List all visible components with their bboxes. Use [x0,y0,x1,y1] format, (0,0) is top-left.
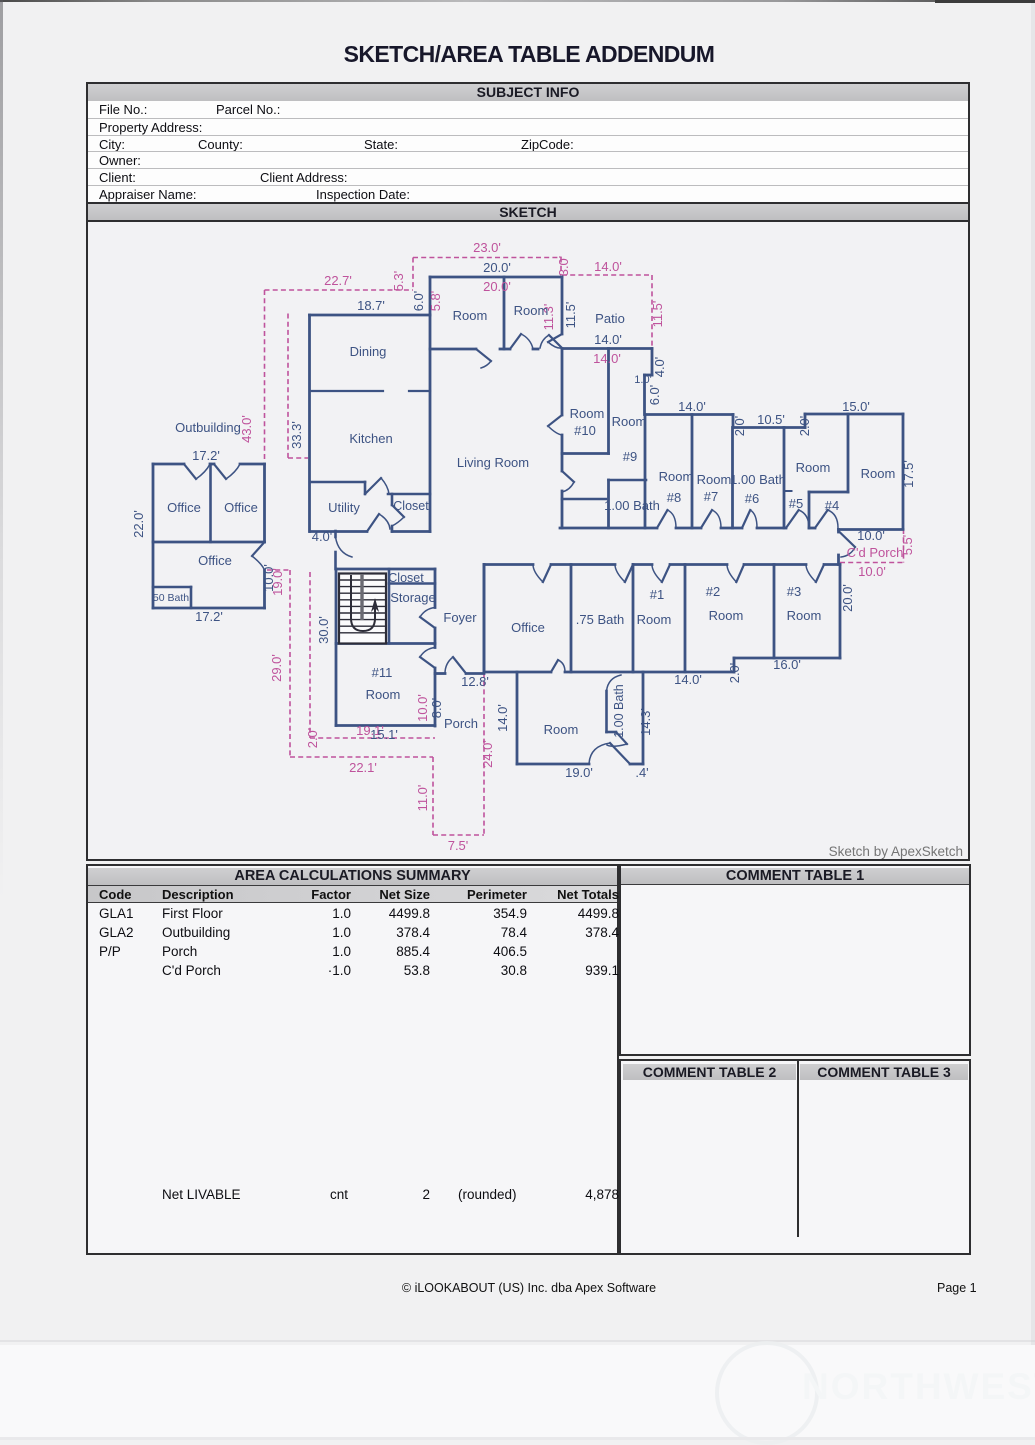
svg-text:10.0': 10.0' [415,694,430,722]
svg-text:2.0': 2.0' [305,728,320,749]
svg-text:Room: Room [637,612,672,627]
svg-text:29.0': 29.0' [269,654,284,682]
svg-text:6.0': 6.0' [647,385,662,406]
svg-text:Foyer: Foyer [443,610,477,625]
svg-text:3.0': 3.0' [556,256,571,277]
svg-text:20.0': 20.0' [840,584,855,612]
svg-text:22.1': 22.1' [349,760,377,775]
svg-text:Room: Room [697,472,732,487]
svg-text:Room: Room [366,687,401,702]
svg-text:4.0': 4.0' [312,529,333,544]
svg-text:43.0': 43.0' [239,415,254,443]
svg-text:10.0': 10.0' [858,564,886,579]
svg-text:Office: Office [167,500,201,515]
svg-text:#11: #11 [372,665,393,680]
svg-text:14.0': 14.0' [593,351,621,366]
svg-text:14.0': 14.0' [674,672,702,687]
svg-text:5.3': 5.3' [391,271,406,292]
svg-text:6.0': 6.0' [411,291,426,312]
svg-text:7.5': 7.5' [448,838,469,853]
svg-text:16.0': 16.0' [773,657,801,672]
svg-text:Sketch by ApexSketch: Sketch by ApexSketch [829,844,963,859]
svg-text:.75 Bath: .75 Bath [576,612,624,627]
svg-text:5.8': 5.8' [428,291,443,312]
svg-text:1.0': 1.0' [634,374,651,386]
svg-text:#4: #4 [825,498,839,513]
svg-text:18.7': 18.7' [357,298,385,313]
svg-text:Kitchen: Kitchen [349,431,392,446]
svg-text:14.0': 14.0' [678,399,706,414]
svg-text:#3: #3 [787,584,801,599]
svg-text:#8: #8 [667,490,681,505]
svg-text:#2: #2 [706,584,720,599]
svg-text:#10: #10 [574,423,596,438]
svg-text:14.0': 14.0' [594,259,622,274]
svg-text:Room: Room [453,308,488,323]
svg-text:#1: #1 [650,587,664,602]
svg-text:1.00 Bath: 1.00 Bath [612,684,626,738]
svg-text:20.0': 20.0' [483,279,511,294]
svg-text:19.0': 19.0' [565,765,593,780]
svg-text:Room: Room [514,303,549,318]
svg-text:Porch: Porch [444,716,478,731]
svg-text:Room: Room [796,460,831,475]
svg-text:#7: #7 [704,489,718,504]
svg-text:Storage: Storage [390,590,436,605]
svg-text:24.0': 24.0' [480,740,495,768]
svg-text:17.2': 17.2' [192,448,220,463]
svg-text:14.3': 14.3' [638,708,653,736]
svg-text:20.0': 20.0' [483,260,511,275]
svg-text:17.2': 17.2' [195,609,223,624]
svg-text:12.8': 12.8' [461,674,489,689]
svg-text:4.0': 4.0' [652,357,667,378]
svg-text:Closet: Closet [388,571,424,585]
svg-text:17.5': 17.5' [901,460,916,488]
svg-text:22.0': 22.0' [131,510,146,538]
svg-text:22.7': 22.7' [324,273,352,288]
svg-text:11.5': 11.5' [650,301,665,328]
svg-text:Outbuilding: Outbuilding [175,420,241,435]
svg-text:15.1': 15.1' [370,727,398,742]
svg-text:Patio: Patio [595,311,625,326]
svg-text:33.3': 33.3' [289,421,304,449]
svg-text:Room: Room [709,608,744,623]
svg-text:Room: Room [544,722,579,737]
svg-text:2.0': 2.0' [797,416,812,437]
svg-text:.4': .4' [635,765,648,780]
svg-text:14.0': 14.0' [594,332,622,347]
svg-text:10.0': 10.0' [261,564,276,592]
svg-text:8.0': 8.0' [429,698,444,719]
svg-text:#5: #5 [789,496,803,511]
svg-text:11.5': 11.5' [563,302,578,329]
svg-text:Room: Room [861,466,896,481]
svg-text:11.0': 11.0' [415,785,430,812]
svg-text:14.0': 14.0' [495,704,510,732]
svg-text:Room: Room [570,406,605,421]
svg-text:C'd Porch: C'd Porch [847,545,904,560]
svg-text:Office: Office [198,553,232,568]
svg-text:50 Bath: 50 Bath [153,592,189,604]
svg-text:Dining: Dining [350,344,387,359]
svg-text:15.0': 15.0' [842,399,870,414]
svg-text:1.00 Bath: 1.00 Bath [730,472,786,487]
svg-text:2.0': 2.0' [732,416,747,437]
svg-text:Utility: Utility [328,500,360,515]
svg-text:Office: Office [511,620,545,635]
svg-text:30.0': 30.0' [316,616,331,644]
svg-text:#6: #6 [745,491,759,506]
svg-text:Office: Office [224,500,258,515]
svg-text:2.0': 2.0' [727,663,742,684]
svg-text:Room: Room [659,469,694,484]
svg-text:Room: Room [787,608,822,623]
svg-text:23.0': 23.0' [473,240,501,255]
svg-text:Room: Room [612,414,647,429]
svg-text:5.5': 5.5' [900,535,915,556]
svg-text:Living Room: Living Room [457,455,529,470]
svg-text:10.5': 10.5' [757,412,785,427]
svg-text:1.00 Bath: 1.00 Bath [604,498,660,513]
svg-text:Closet: Closet [393,499,429,513]
svg-text:10.0': 10.0' [857,528,885,543]
svg-text:#9: #9 [623,449,637,464]
